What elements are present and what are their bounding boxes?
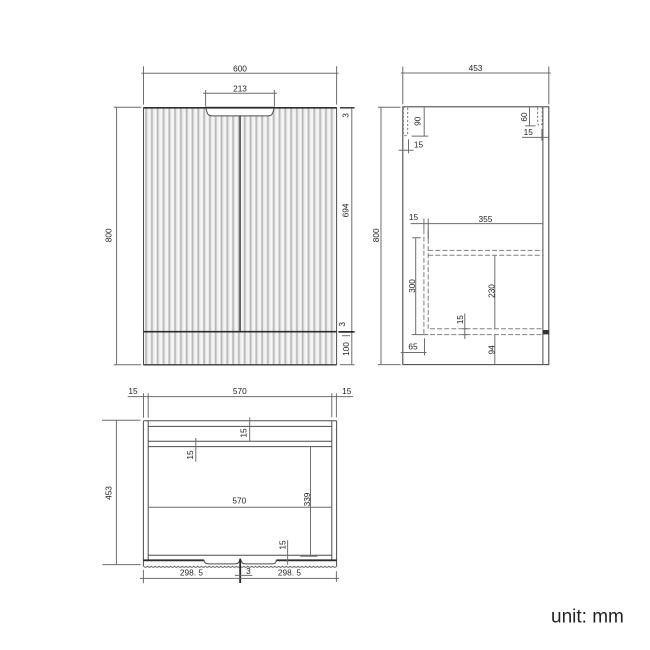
svg-text:15: 15 <box>128 386 138 396</box>
svg-text:339: 339 <box>302 492 312 506</box>
svg-text:213: 213 <box>233 84 247 94</box>
svg-text:230: 230 <box>486 284 496 298</box>
svg-text:15: 15 <box>524 127 534 137</box>
svg-text:15: 15 <box>342 386 352 396</box>
svg-text:15: 15 <box>414 139 424 149</box>
svg-text:15: 15 <box>278 540 288 550</box>
svg-text:65: 65 <box>408 342 418 352</box>
svg-text:570: 570 <box>233 386 247 396</box>
svg-text:100: 100 <box>341 342 351 356</box>
svg-text:600: 600 <box>233 63 247 73</box>
svg-text:355: 355 <box>478 214 492 224</box>
svg-text:3: 3 <box>246 566 251 576</box>
svg-text:453: 453 <box>104 486 114 500</box>
svg-text:94: 94 <box>486 345 496 355</box>
svg-text:694: 694 <box>340 203 350 217</box>
svg-text:3: 3 <box>340 113 350 118</box>
svg-text:15: 15 <box>238 428 248 438</box>
svg-text:3: 3 <box>337 322 347 327</box>
svg-text:298. 5: 298. 5 <box>278 567 301 577</box>
svg-text:15: 15 <box>409 212 419 222</box>
svg-text:570: 570 <box>232 496 246 506</box>
svg-text:15: 15 <box>185 450 195 460</box>
svg-text:unit: mm: unit: mm <box>551 607 624 628</box>
svg-text:453: 453 <box>469 63 483 73</box>
svg-text:300: 300 <box>407 279 417 293</box>
svg-text:800: 800 <box>103 228 113 242</box>
svg-text:298. 5: 298. 5 <box>180 567 203 577</box>
svg-text:90: 90 <box>413 116 423 126</box>
svg-text:800: 800 <box>371 228 381 242</box>
svg-text:60: 60 <box>519 112 529 122</box>
svg-text:15: 15 <box>455 315 465 325</box>
